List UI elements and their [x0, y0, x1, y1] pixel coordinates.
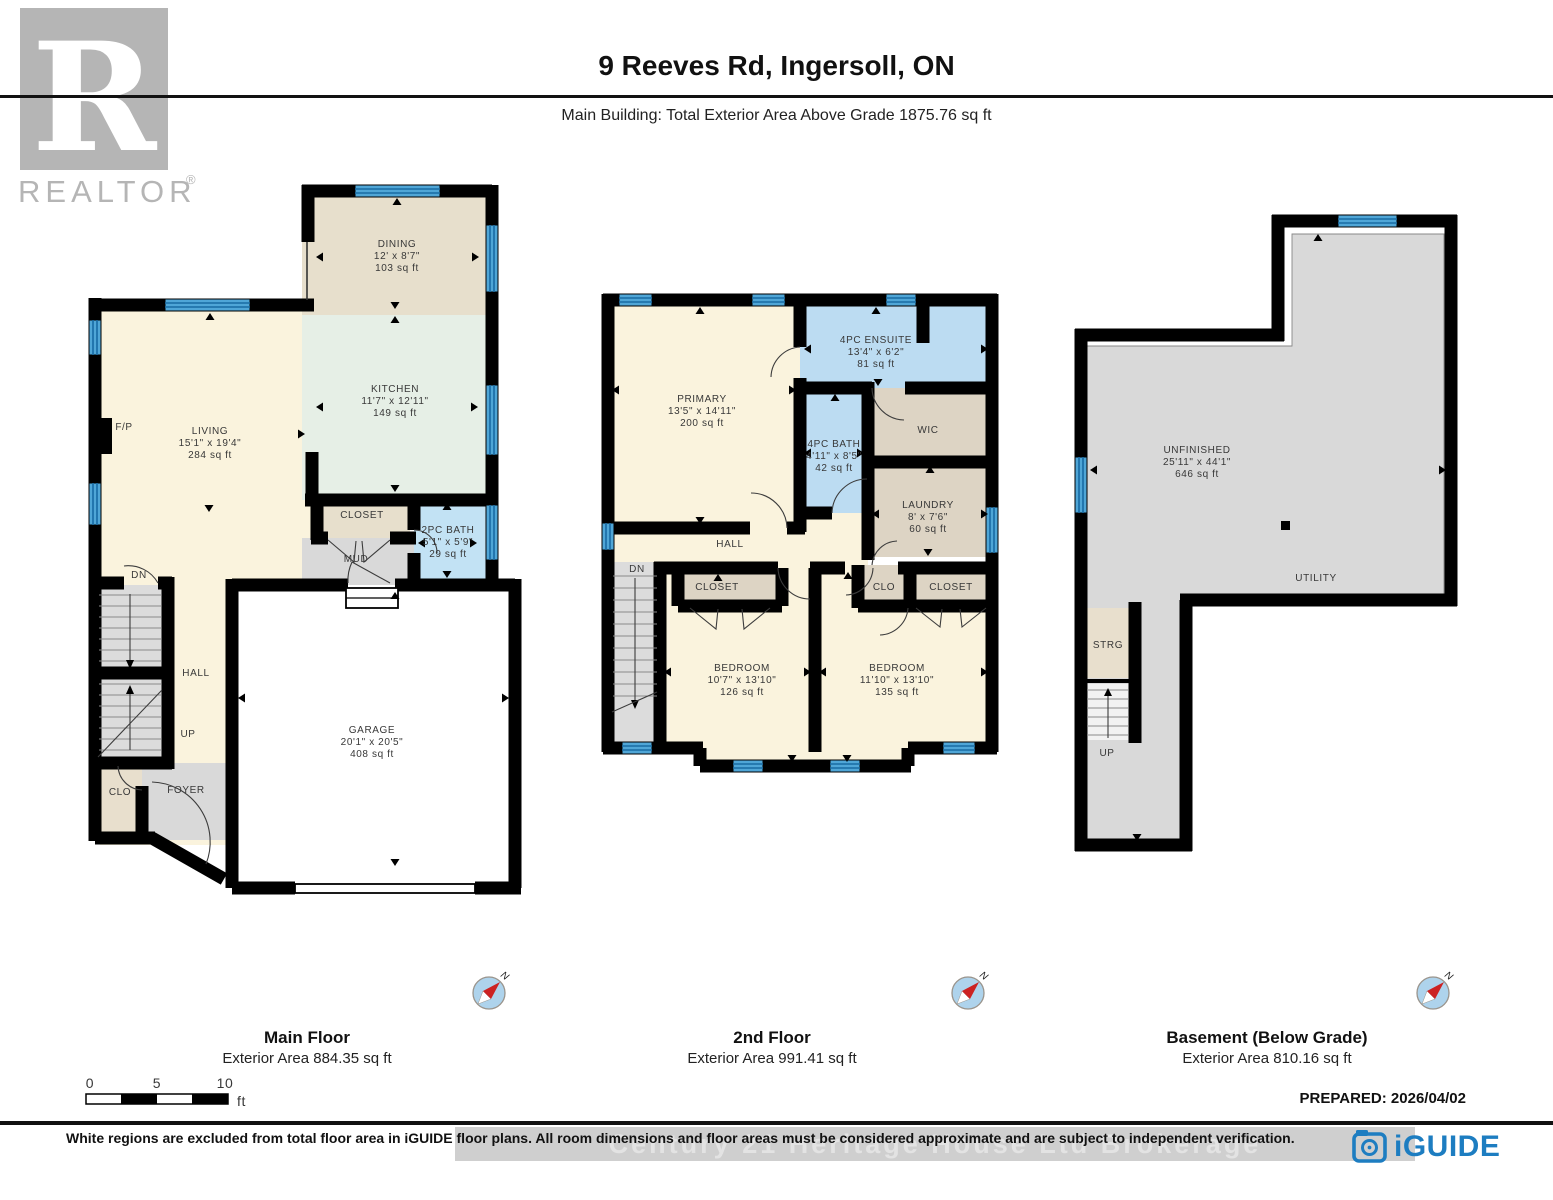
support-post	[1281, 521, 1290, 530]
svg-text:25'11" x 44'1": 25'11" x 44'1"	[1163, 457, 1231, 468]
footer-divider	[0, 1121, 1553, 1125]
svg-text:DN: DN	[629, 564, 645, 575]
svg-text:PRIMARY: PRIMARY	[677, 394, 727, 405]
svg-text:20'1" x 20'5": 20'1" x 20'5"	[341, 737, 404, 748]
svg-text:CLOSET: CLOSET	[695, 582, 739, 593]
svg-text:HALL: HALL	[716, 539, 743, 550]
svg-text:KITCHEN: KITCHEN	[371, 384, 419, 395]
svg-text:CLO: CLO	[109, 787, 131, 798]
disclaimer-text: White regions are excluded from total fl…	[66, 1130, 1326, 1146]
svg-text:42 sq ft: 42 sq ft	[815, 463, 853, 474]
svg-text:200 sq ft: 200 sq ft	[680, 418, 724, 429]
svg-text:10'7" x 13'10": 10'7" x 13'10"	[708, 675, 777, 686]
main-floor-title: Main Floor Exterior Area 884.35 sq ft	[147, 1028, 467, 1067]
svg-text:BEDROOM: BEDROOM	[869, 663, 925, 674]
svg-text:5: 5	[153, 1075, 161, 1091]
iguide-logo: iGUIDE	[1352, 1129, 1500, 1165]
svg-text:11'7" x 12'11": 11'7" x 12'11"	[361, 396, 428, 407]
floorplan-page: R REALTOR ® 9 Reeves Rd, Ingersoll, ON M…	[0, 0, 1553, 1200]
prepared-date: PREPARED: 2026/04/02	[1300, 1090, 1466, 1107]
svg-text:ft: ft	[237, 1093, 246, 1109]
svg-text:UNFINISHED: UNFINISHED	[1163, 445, 1230, 456]
svg-text:WIC: WIC	[917, 425, 938, 436]
svg-text:CLO: CLO	[873, 582, 895, 593]
svg-text:4PC BATH: 4PC BATH	[808, 439, 861, 450]
svg-text:12' x 8'7": 12' x 8'7"	[374, 251, 420, 262]
svg-text:DINING: DINING	[378, 239, 417, 250]
svg-text:STRG: STRG	[1093, 640, 1123, 651]
svg-text:126 sq ft: 126 sq ft	[720, 687, 764, 698]
svg-text:MUD: MUD	[344, 554, 369, 565]
svg-text:UP: UP	[1099, 748, 1114, 759]
svg-text:5'1" x 5'9": 5'1" x 5'9"	[423, 537, 473, 548]
svg-text:HALL: HALL	[182, 668, 209, 679]
second-floor-plan: PRIMARY 13'5" x 14'11" 200 sq ft 4PC ENS…	[602, 294, 998, 772]
svg-text:15'1" x 19'4": 15'1" x 19'4"	[179, 438, 242, 449]
second-floor-title: 2nd Floor Exterior Area 991.41 sq ft	[612, 1028, 932, 1067]
svg-text:408 sq ft: 408 sq ft	[350, 749, 394, 760]
svg-text:F/P: F/P	[115, 422, 132, 433]
svg-text:13'5" x 14'11": 13'5" x 14'11"	[668, 406, 736, 417]
svg-text:0: 0	[86, 1075, 94, 1091]
svg-text:11'10" x 13'10": 11'10" x 13'10"	[860, 675, 934, 686]
svg-text:135 sq ft: 135 sq ft	[875, 687, 919, 698]
svg-text:UP: UP	[180, 729, 195, 740]
svg-text:4PC ENSUITE: 4PC ENSUITE	[840, 335, 912, 346]
svg-text:CLOSET: CLOSET	[929, 582, 973, 593]
iguide-camera-icon	[1352, 1129, 1390, 1165]
svg-text:UTILITY: UTILITY	[1295, 573, 1336, 584]
svg-text:10: 10	[217, 1075, 234, 1091]
svg-text:284 sq ft: 284 sq ft	[188, 450, 232, 461]
svg-text:LIVING: LIVING	[192, 426, 228, 437]
svg-text:13'4" x 6'2": 13'4" x 6'2"	[848, 347, 904, 358]
scale-bar: 0 5 10 ft	[86, 1075, 246, 1109]
basement-title: Basement (Below Grade) Exterior Area 810…	[1107, 1028, 1427, 1067]
main-floor-plan: DINING 12' x 8'7" 103 sq ft KITCHEN 11'7…	[89, 185, 521, 893]
basement-plan: UNFINISHED 25'11" x 44'1" 646 sq ft UTIL…	[1075, 215, 1457, 851]
svg-text:FOYER: FOYER	[167, 785, 204, 796]
svg-text:DN: DN	[131, 570, 147, 581]
svg-text:29 sq ft: 29 sq ft	[429, 549, 467, 560]
svg-text:4'11" x 8'5": 4'11" x 8'5"	[806, 451, 862, 462]
svg-text:60 sq ft: 60 sq ft	[909, 524, 947, 535]
svg-text:CLOSET: CLOSET	[340, 510, 384, 521]
svg-text:BEDROOM: BEDROOM	[714, 663, 770, 674]
svg-text:103 sq ft: 103 sq ft	[375, 263, 419, 274]
svg-text:LAUNDRY: LAUNDRY	[902, 500, 954, 511]
iguide-logo-text: iGUIDE	[1394, 1130, 1500, 1164]
svg-text:149 sq ft: 149 sq ft	[373, 408, 417, 419]
svg-text:GARAGE: GARAGE	[349, 725, 395, 736]
svg-text:2PC BATH: 2PC BATH	[422, 525, 475, 536]
svg-text:8' x 7'6": 8' x 7'6"	[908, 512, 948, 523]
floorplan-canvas: N	[0, 0, 1553, 1200]
svg-text:646 sq ft: 646 sq ft	[1175, 469, 1219, 480]
svg-text:81 sq ft: 81 sq ft	[857, 359, 895, 370]
